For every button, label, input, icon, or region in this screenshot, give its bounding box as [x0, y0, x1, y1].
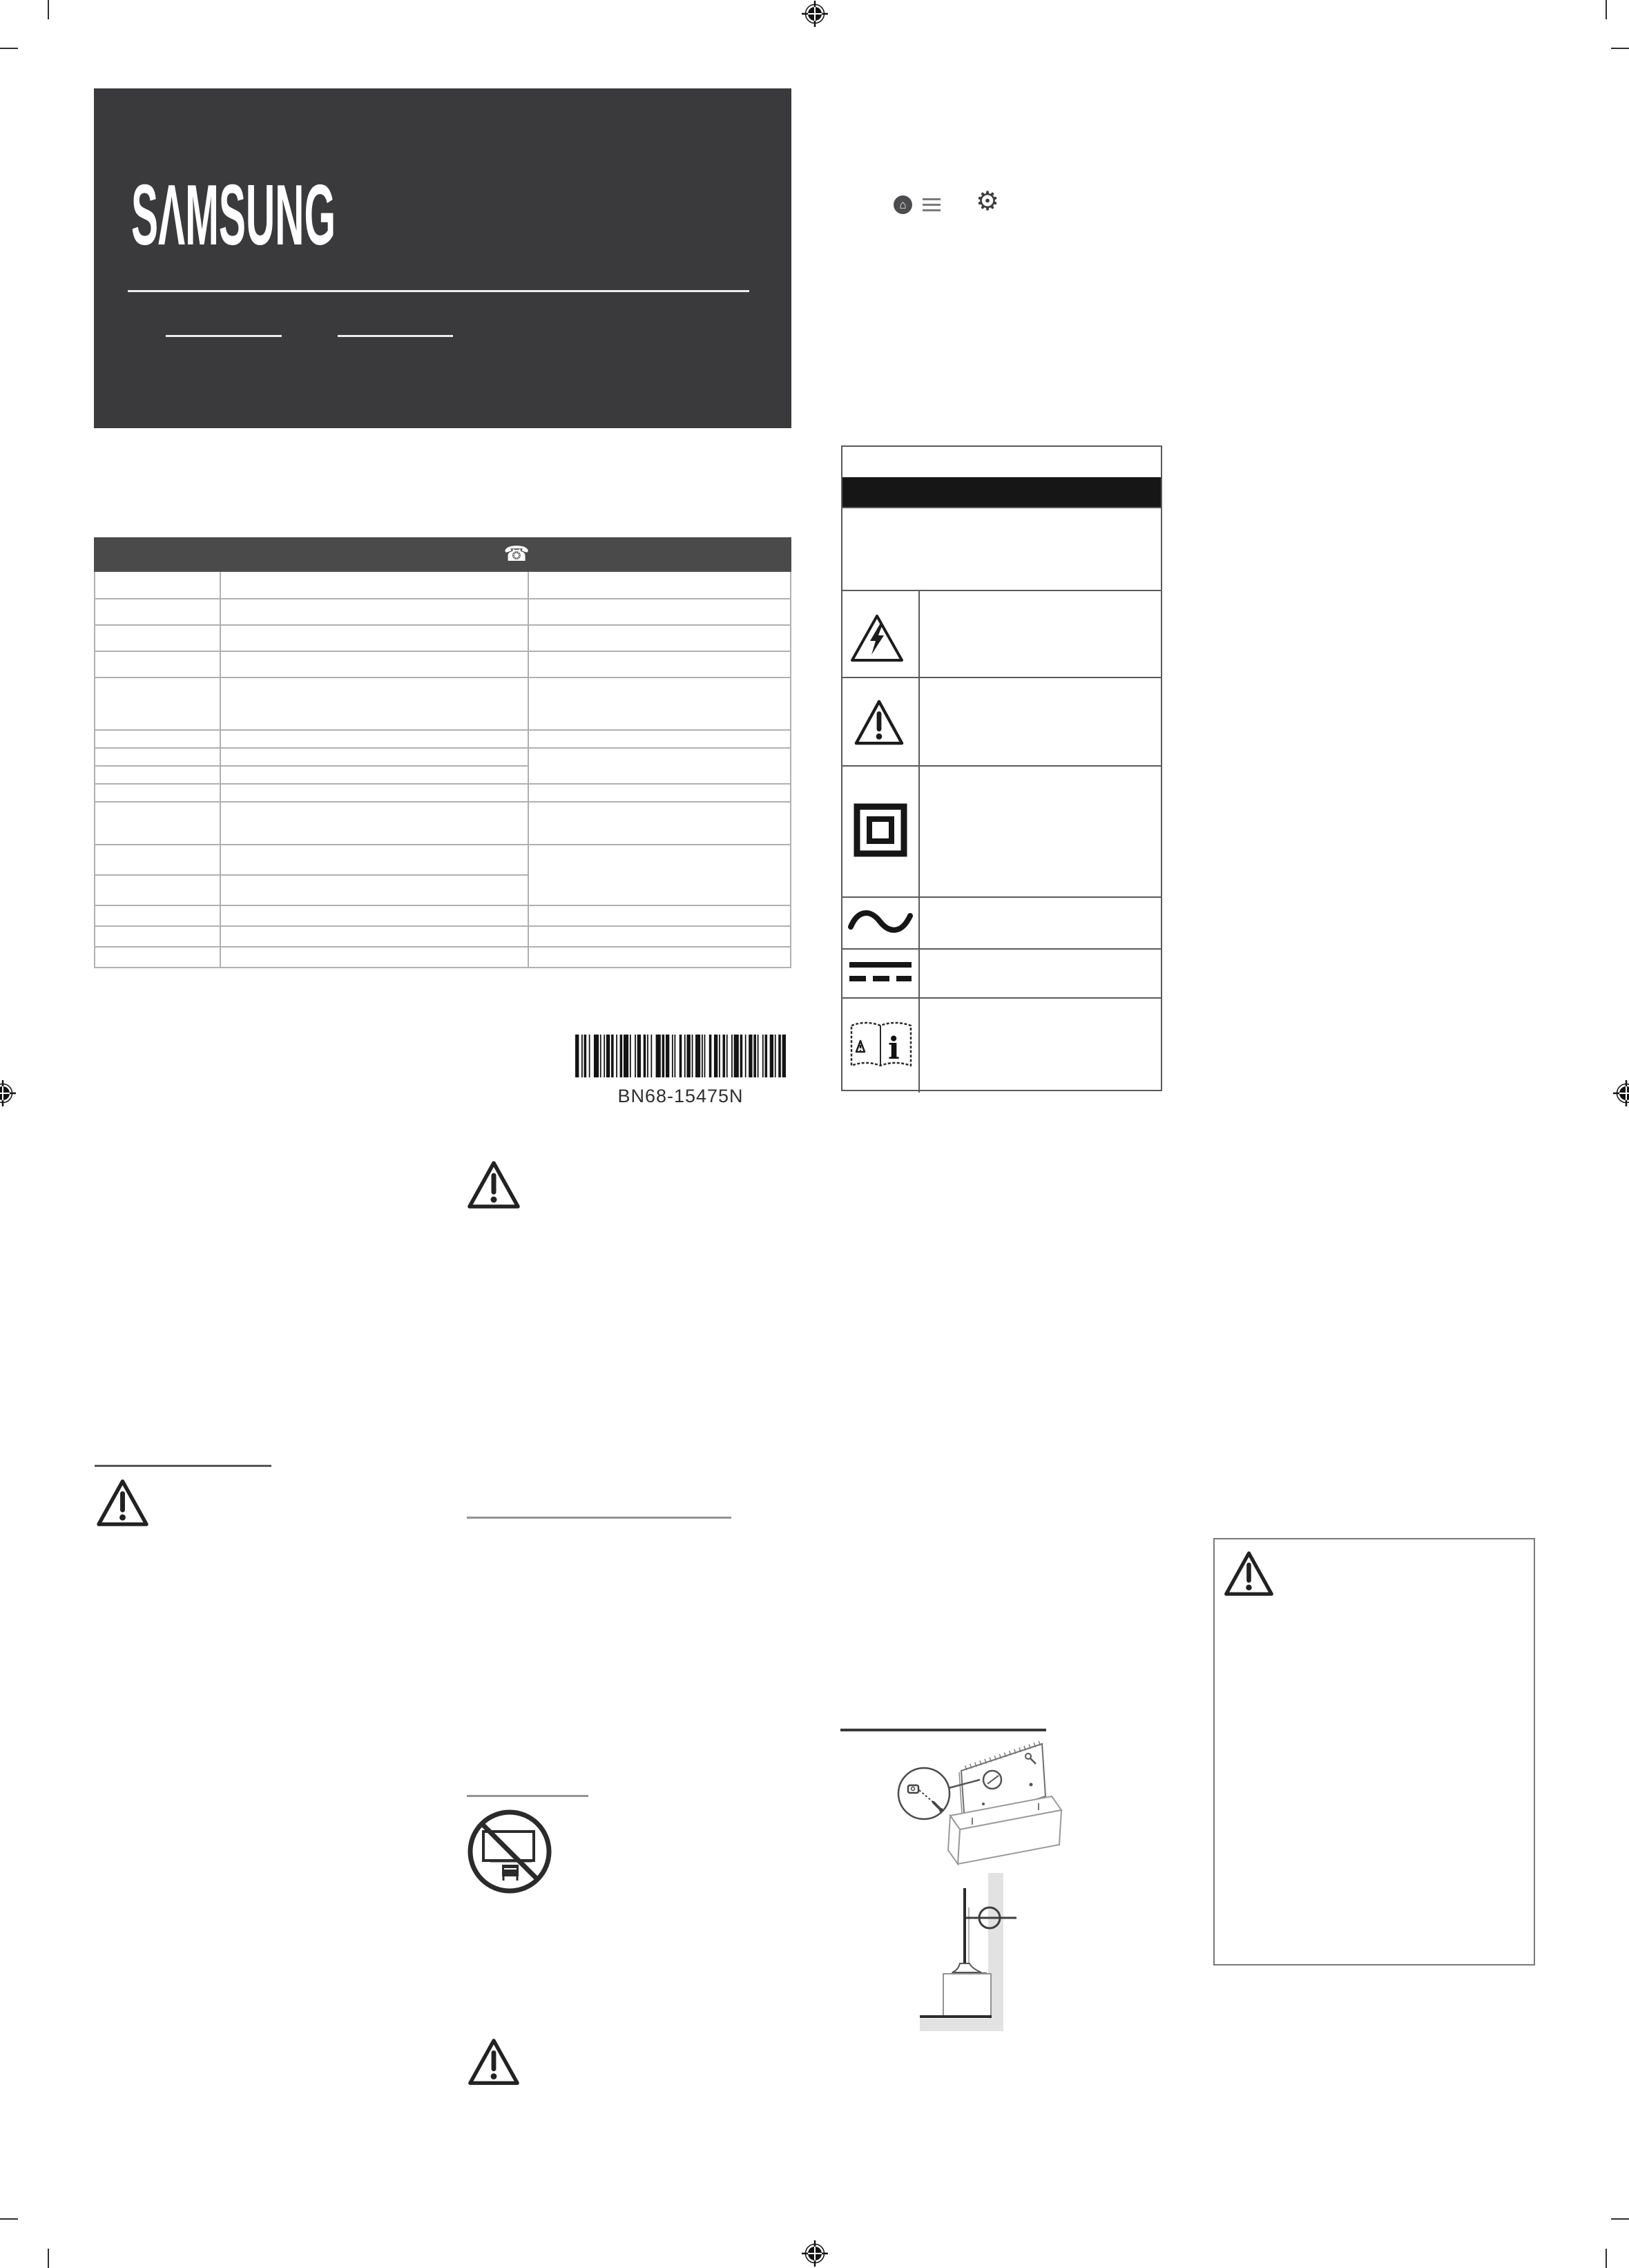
telephone-icon: ☎ [363, 537, 671, 572]
barcode-bar [782, 1035, 786, 1077]
svg-text:SΛMSUNG: SΛMSUNG [131, 181, 336, 253]
registration-mark [1612, 1079, 1629, 1107]
barcode-bar [753, 1035, 756, 1077]
svg-text:i: i [888, 1031, 900, 1066]
registration-mark [801, 2240, 829, 2267]
barcode-bar [704, 1035, 706, 1077]
barcode-bar [581, 1035, 583, 1077]
barcode-bar [684, 1035, 686, 1077]
safety-symbol-table: i [841, 445, 1162, 1091]
table-gridline-vertical [528, 572, 529, 967]
barcode-bar [723, 1035, 726, 1077]
contact-table: ☎ [94, 537, 791, 967]
table-gridline-vertical [790, 572, 791, 967]
symbol-table-line [842, 765, 1161, 767]
table-gridline-vertical [94, 572, 95, 967]
table-gridline [94, 905, 791, 906]
settings-gear-icon[interactable]: ⚙ [976, 188, 999, 215]
table-gridline-vertical [220, 572, 221, 967]
warning-triangle-icon [95, 1478, 150, 1528]
symbol-table-line [842, 507, 1161, 508]
class-ii-double-square-icon [853, 803, 908, 858]
barcode-bar [604, 1035, 605, 1077]
table-gridline [94, 651, 791, 652]
table-gridline [94, 624, 791, 626]
table-gridline [94, 946, 791, 948]
section-rule [467, 1795, 588, 1797]
table-gridline [94, 967, 791, 968]
warning-triangle-icon [1223, 1549, 1275, 1599]
barcode-bar [719, 1035, 720, 1077]
barcode-bar [644, 1035, 646, 1077]
table-gridline [94, 783, 791, 785]
brand-panel: SΛMSUNG [94, 88, 791, 428]
crop-mark [48, 0, 49, 19]
crop-mark [48, 2249, 49, 2268]
table-gridline [94, 844, 791, 845]
barcode-bar [650, 1035, 652, 1077]
barcode-bar [672, 1035, 673, 1077]
barcode-bar [600, 1035, 601, 1077]
barcode-bar [770, 1035, 773, 1077]
table-gridline [94, 801, 791, 803]
barcode-bar [745, 1035, 746, 1077]
barcode-bar [740, 1035, 743, 1077]
barcode-bar [637, 1035, 641, 1077]
barcode-bar [630, 1035, 631, 1077]
barcode-bar [758, 1035, 759, 1077]
symbol-table-line [842, 590, 1161, 591]
crop-mark [1606, 0, 1607, 19]
refer-to-manual-icon: i [848, 1019, 914, 1074]
symbol-table-line [842, 896, 1161, 898]
barcode-bar [666, 1035, 669, 1077]
barcode-bar [734, 1035, 739, 1077]
barcode-bar [589, 1035, 590, 1077]
dc-voltage-icon [848, 961, 913, 986]
warning-triangle-icon [467, 2037, 521, 2088]
menu-icon[interactable] [923, 209, 941, 211]
barcode-bar [624, 1035, 628, 1077]
barcode-bar [775, 1035, 776, 1077]
ac-voltage-icon [848, 905, 913, 939]
home-icon[interactable]: ⌂ [894, 195, 912, 214]
table-gridline [94, 677, 791, 678]
registration-mark [801, 0, 829, 28]
warning-triangle-icon [466, 1159, 521, 1211]
barcode-bar [620, 1035, 623, 1077]
barcode-bar [656, 1035, 661, 1077]
barcode-bar [594, 1035, 599, 1077]
barcode-bar [606, 1035, 610, 1077]
barcode-bar [695, 1035, 700, 1077]
barcode-bar [611, 1035, 614, 1077]
table-gridline [94, 925, 791, 927]
barcode [575, 1035, 786, 1077]
caution-note-box [1213, 1538, 1535, 1966]
barcode-bar [749, 1035, 752, 1077]
crop-mark [0, 48, 18, 49]
barcode-bar [647, 1035, 648, 1077]
barcode-bar [686, 1035, 690, 1077]
contact-table-header: ☎ [94, 537, 791, 572]
barcode-bar [702, 1035, 703, 1077]
barcode-bar [692, 1035, 693, 1077]
symbol-table-line [842, 677, 1161, 678]
symbol-table-line [842, 997, 1161, 999]
table-gridline [94, 729, 791, 731]
caution-warning-icon [852, 698, 906, 747]
table-gridline [94, 765, 528, 767]
barcode-bar [575, 1035, 579, 1077]
crop-mark [0, 2218, 18, 2220]
crop-mark [1606, 2249, 1607, 2268]
table-gridline [94, 598, 791, 599]
barcode-bar [762, 1035, 764, 1077]
barcode-label: BN68-15475N [575, 1086, 786, 1107]
panel-underline [338, 335, 453, 337]
barcode-bar [635, 1035, 636, 1077]
manual-page: SΛMSUNG ☎ ⌂ ⚙ [0, 0, 1629, 2268]
barcode-bar [726, 1035, 728, 1077]
crop-mark [1611, 2218, 1629, 2220]
barcode-bar [662, 1035, 665, 1077]
brand-panel-rule [128, 290, 749, 292]
high-voltage-warning-icon [848, 612, 906, 664]
barcode-bar [714, 1035, 717, 1077]
black-banner-row [842, 477, 1161, 507]
barcode-bar [616, 1035, 617, 1077]
section-rule [95, 1465, 271, 1467]
menu-icon[interactable] [923, 204, 941, 206]
barcode-bar [675, 1035, 676, 1077]
table-gridline [94, 747, 791, 749]
symbol-table-line [842, 948, 1161, 950]
registration-mark [0, 1079, 17, 1107]
barcode-bar [765, 1035, 768, 1077]
barcode-bar [778, 1035, 781, 1077]
barcode-bar [731, 1035, 733, 1077]
panel-underline [166, 335, 282, 337]
tv-anchoring-diagram [822, 1727, 1084, 2044]
symbol-table-divider [918, 590, 920, 1093]
barcode-bar [709, 1035, 712, 1077]
crop-mark [1611, 48, 1629, 49]
section-rule [467, 1517, 731, 1519]
barcode-bar [679, 1035, 682, 1077]
barcode-bar [584, 1035, 587, 1077]
no-tv-prohibition-icon [464, 1805, 557, 1898]
samsung-logo: SΛMSUNG [130, 181, 344, 253]
table-gridline [94, 874, 528, 876]
menu-icon[interactable] [923, 198, 941, 200]
